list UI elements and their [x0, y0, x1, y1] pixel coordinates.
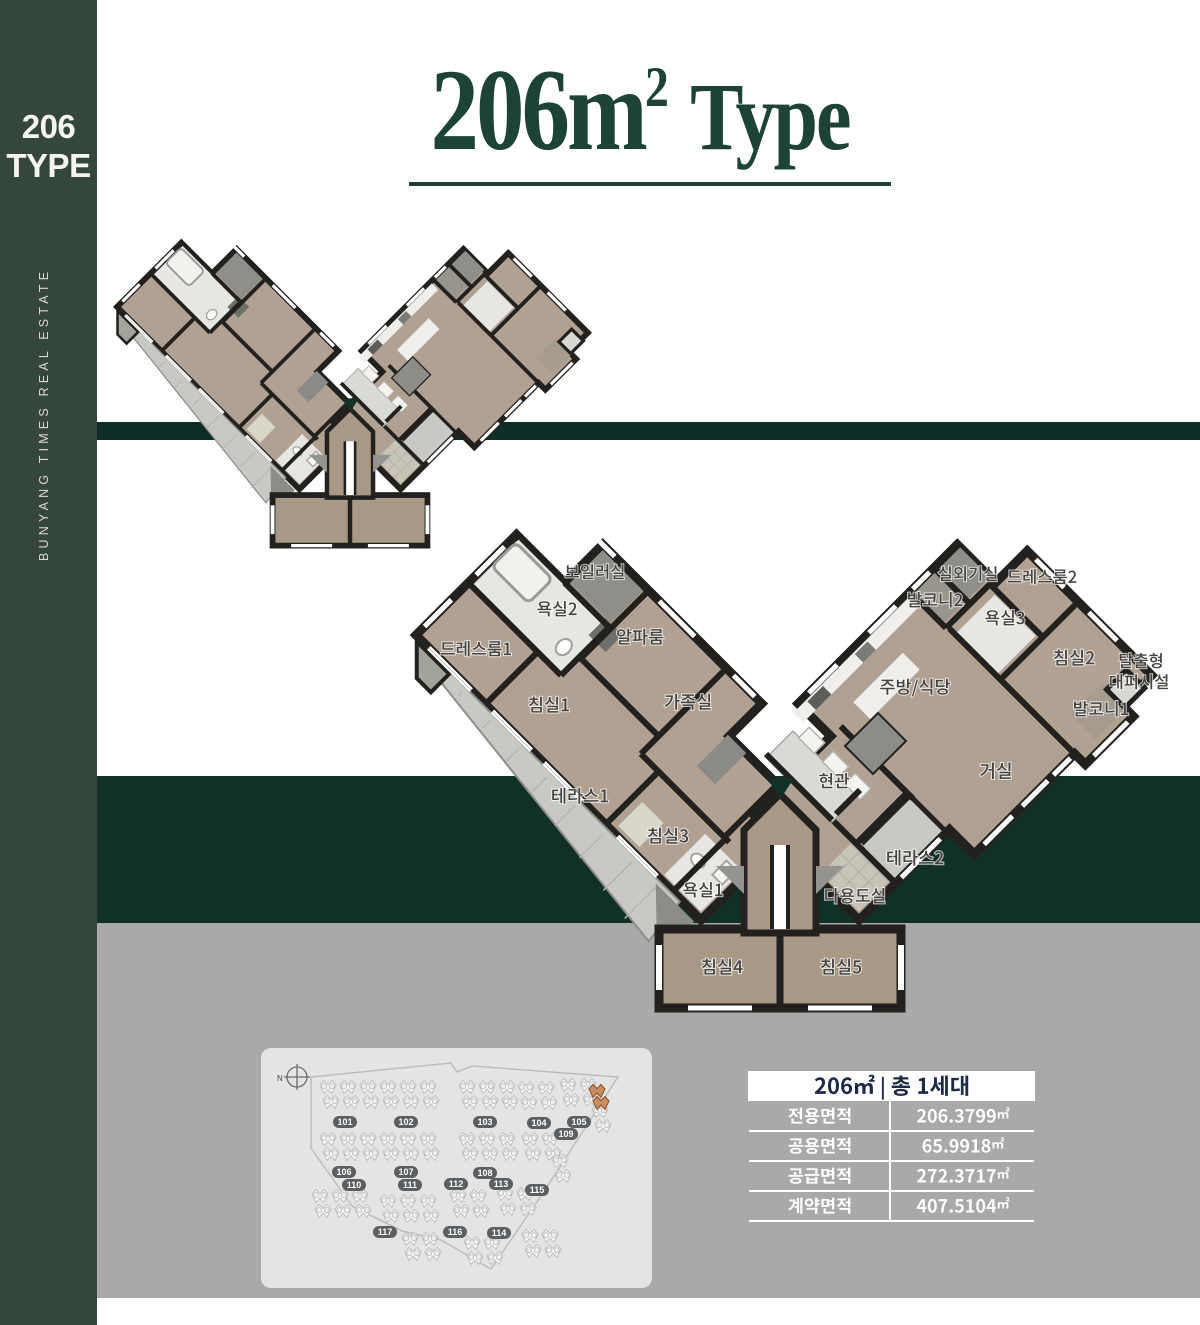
svg-text:114: 114 — [492, 1228, 507, 1238]
svg-text:102: 102 — [398, 1117, 413, 1127]
svg-text:109: 109 — [558, 1129, 573, 1139]
svg-text:113: 113 — [494, 1179, 509, 1189]
svg-text:112: 112 — [449, 1179, 464, 1189]
svg-text:111: 111 — [403, 1180, 417, 1190]
svg-text:115: 115 — [530, 1185, 545, 1195]
svg-text:117: 117 — [378, 1227, 393, 1237]
svg-text:107: 107 — [398, 1167, 413, 1177]
svg-text:108: 108 — [477, 1168, 492, 1178]
svg-text:101: 101 — [337, 1117, 352, 1127]
svg-text:116: 116 — [448, 1227, 463, 1237]
svg-text:106: 106 — [336, 1167, 351, 1177]
svg-text:N: N — [277, 1074, 283, 1083]
svg-text:105: 105 — [571, 1117, 586, 1127]
svg-text:110: 110 — [347, 1180, 362, 1190]
svg-text:103: 103 — [477, 1117, 492, 1127]
svg-text:104: 104 — [531, 1118, 546, 1128]
